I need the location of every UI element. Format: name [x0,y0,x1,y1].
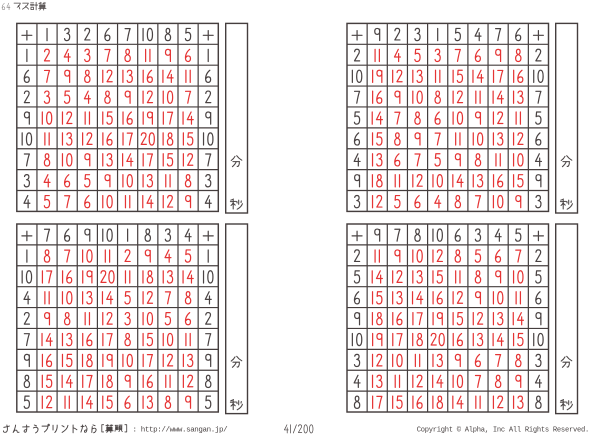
svg-text:: http://www.sangan.jp/: : http://www.sangan.jp/ [133,427,229,435]
svg-text:Copyright © Alpha, Inc All Rig: Copyright © Alpha, Inc All Rights Reserv… [417,425,589,434]
